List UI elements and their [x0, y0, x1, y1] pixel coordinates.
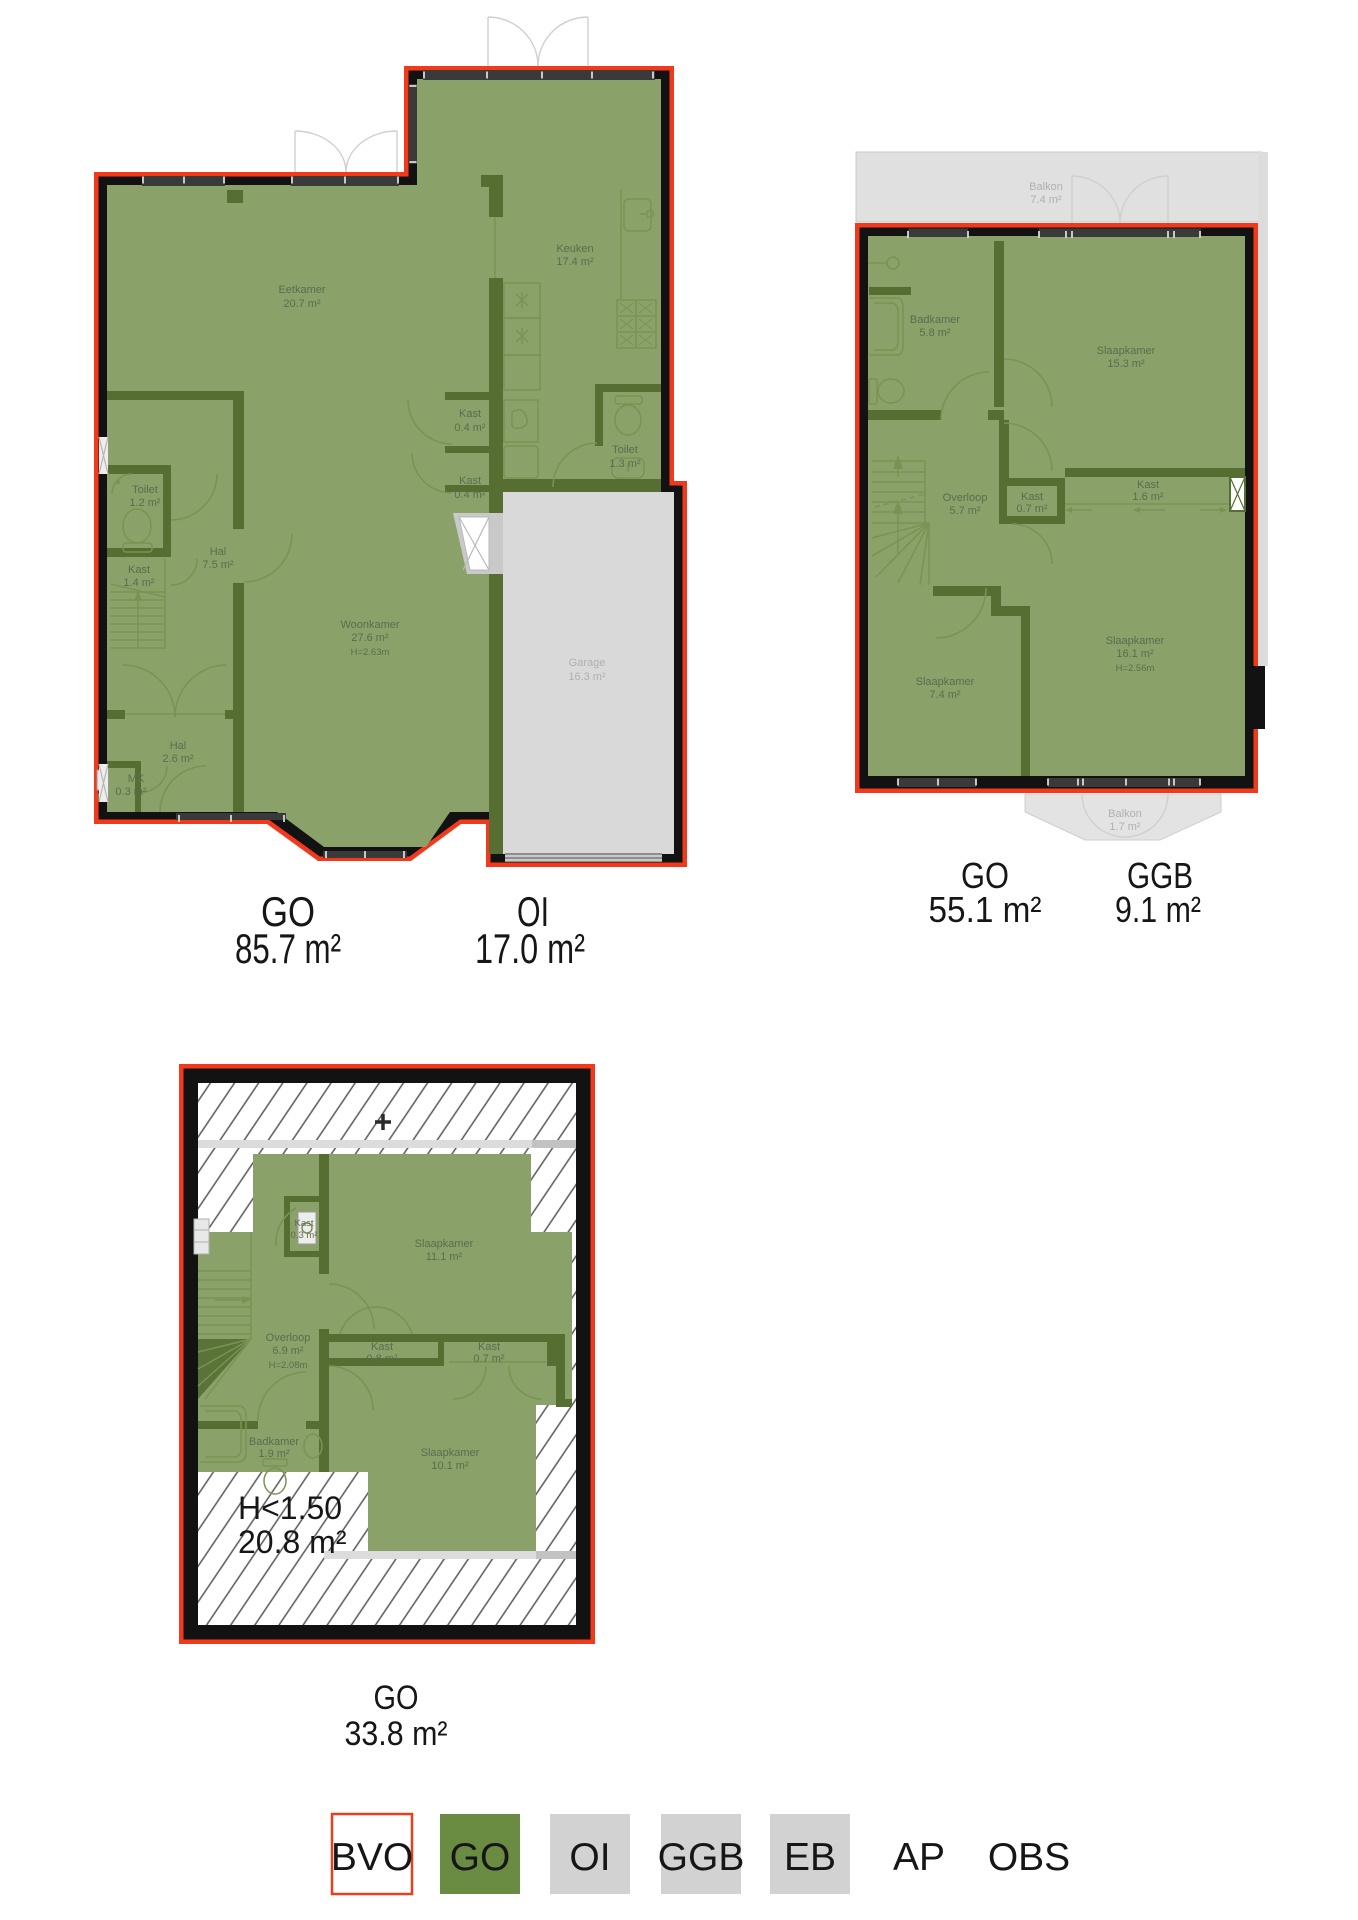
svg-text:Slaapkamer: Slaapkamer: [1106, 635, 1165, 647]
svg-text:Kast: Kast: [128, 564, 150, 576]
svg-text:15.3 m²: 15.3 m²: [1107, 358, 1145, 370]
svg-text:OBS: OBS: [988, 1836, 1070, 1879]
svg-text:H=2.56m: H=2.56m: [1116, 663, 1155, 674]
svg-text:Slaapkamer: Slaapkamer: [421, 1447, 480, 1459]
svg-text:Keuken: Keuken: [556, 243, 593, 255]
svg-text:Garage: Garage: [569, 657, 606, 669]
svg-text:Badkamer: Badkamer: [910, 314, 960, 326]
svg-text:Kast: Kast: [294, 1218, 313, 1229]
svg-text:EB: EB: [784, 1836, 836, 1879]
svg-text:0.7 m²: 0.7 m²: [473, 1353, 505, 1365]
svg-text:Kast: Kast: [1021, 491, 1043, 503]
svg-text:85.7 m²: 85.7 m²: [235, 925, 341, 972]
svg-text:20.7 m²: 20.7 m²: [283, 298, 321, 310]
svg-text:17.0 m²: 17.0 m²: [475, 925, 585, 972]
svg-text:Slaapkamer: Slaapkamer: [1097, 345, 1156, 357]
svg-text:Toilet: Toilet: [612, 444, 638, 456]
svg-text:1.4 m²: 1.4 m²: [123, 577, 155, 589]
svg-text:Hal: Hal: [210, 546, 227, 558]
svg-text:0.3 m²: 0.3 m²: [291, 1230, 318, 1241]
svg-text:27.6 m²: 27.6 m²: [351, 632, 389, 644]
svg-text:Kast: Kast: [371, 1341, 393, 1353]
svg-text:GO: GO: [374, 1679, 419, 1717]
svg-text:0.4 m²: 0.4 m²: [454, 422, 486, 434]
svg-text:BVO: BVO: [331, 1836, 413, 1879]
svg-text:0.3 m²: 0.3 m²: [115, 786, 147, 798]
svg-text:Overloop: Overloop: [943, 492, 988, 504]
svg-text:7.4 m²: 7.4 m²: [929, 689, 961, 701]
svg-text:Eetkamer: Eetkamer: [278, 284, 325, 296]
svg-text:9.1 m²: 9.1 m²: [1115, 889, 1201, 930]
svg-text:Balkon: Balkon: [1029, 181, 1063, 193]
svg-text:16.1 m²: 16.1 m²: [1116, 648, 1154, 660]
svg-text:20.8 m²: 20.8 m²: [238, 1524, 347, 1560]
svg-text:16.3 m²: 16.3 m²: [568, 671, 606, 683]
svg-text:Kast: Kast: [1137, 479, 1159, 491]
svg-text:33.8 m²: 33.8 m²: [345, 1715, 448, 1753]
svg-text:6.9 m²: 6.9 m²: [272, 1345, 304, 1357]
svg-text:Woonkamer: Woonkamer: [340, 619, 399, 631]
svg-text:Hal: Hal: [170, 740, 187, 752]
svg-text:0.7 m²: 0.7 m²: [1016, 503, 1048, 515]
svg-text:1.7 m²: 1.7 m²: [1109, 821, 1141, 833]
svg-text:GO: GO: [450, 1836, 511, 1879]
svg-text:55.1 m²: 55.1 m²: [929, 889, 1042, 930]
svg-text:0.8 m²: 0.8 m²: [366, 1353, 398, 1365]
svg-text:1.3 m²: 1.3 m²: [609, 458, 641, 470]
svg-text:2.6 m²: 2.6 m²: [162, 753, 194, 765]
svg-text:7.4 m²: 7.4 m²: [1030, 194, 1062, 206]
svg-text:1.9 m²: 1.9 m²: [258, 1448, 290, 1460]
svg-text:17.4 m²: 17.4 m²: [556, 256, 594, 268]
svg-text:1.2 m²: 1.2 m²: [129, 497, 161, 509]
svg-text:10.1 m²: 10.1 m²: [431, 1460, 469, 1472]
svg-text:GGB: GGB: [658, 1836, 745, 1879]
svg-text:Balkon: Balkon: [1108, 808, 1142, 820]
svg-text:1.6 m²: 1.6 m²: [1132, 491, 1164, 503]
svg-text:7.5 m²: 7.5 m²: [202, 559, 234, 571]
svg-text:Slaapkamer: Slaapkamer: [916, 676, 975, 688]
svg-text:11.1 m²: 11.1 m²: [426, 1251, 463, 1263]
svg-text:Slaapkamer: Slaapkamer: [415, 1238, 474, 1250]
svg-text:Toilet: Toilet: [132, 484, 158, 496]
svg-text:Kast: Kast: [478, 1341, 500, 1353]
svg-text:0.4 m²: 0.4 m²: [454, 489, 486, 501]
svg-text:MK: MK: [128, 773, 145, 785]
svg-text:H=2.08m: H=2.08m: [269, 1360, 308, 1371]
svg-text:Kast: Kast: [459, 475, 481, 487]
svg-text:5.7 m²: 5.7 m²: [949, 505, 981, 517]
svg-text:Badkamer: Badkamer: [249, 1436, 299, 1448]
svg-text:OI: OI: [569, 1836, 610, 1879]
svg-text:Overloop: Overloop: [266, 1332, 311, 1344]
svg-text:H<1.50: H<1.50: [238, 1490, 342, 1526]
svg-text:Kast: Kast: [459, 408, 481, 420]
svg-text:AP: AP: [893, 1836, 945, 1879]
svg-text:5.8 m²: 5.8 m²: [919, 327, 951, 339]
svg-text:H=2.63m: H=2.63m: [351, 647, 390, 658]
